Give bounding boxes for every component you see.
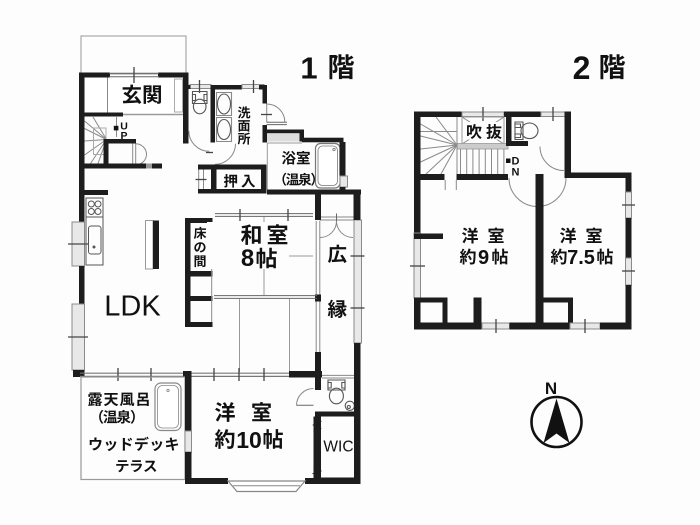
svg-text:LDK: LDK [104, 291, 161, 323]
svg-text:9: 9 [478, 247, 489, 269]
svg-text:N: N [512, 167, 520, 179]
svg-text:N: N [545, 379, 557, 398]
svg-text:WIC: WIC [323, 439, 353, 456]
svg-text:7.5: 7.5 [567, 247, 595, 269]
svg-text:1: 1 [300, 51, 317, 86]
svg-text:10: 10 [236, 427, 262, 453]
svg-text:8: 8 [241, 245, 254, 272]
svg-text:2: 2 [573, 50, 591, 86]
